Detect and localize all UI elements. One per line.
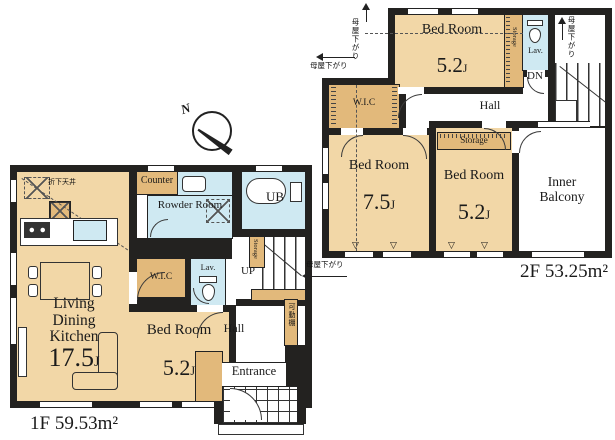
tv-board: [18, 327, 27, 377]
wall-segment: [298, 385, 306, 424]
window: [40, 401, 92, 408]
storage-2f-side-label: Storage: [511, 27, 518, 47]
wall-segment: [429, 128, 436, 251]
window: [182, 401, 214, 408]
window: [322, 148, 329, 174]
window-symbol: ▽: [481, 241, 488, 251]
door-opening: [129, 272, 137, 304]
wall-segment: [388, 8, 395, 85]
wall-segment: [232, 229, 312, 237]
powder-room-label: Rowder Room: [150, 200, 230, 212]
ldk-size-label: 17.5J: [38, 344, 110, 372]
window: [140, 401, 172, 408]
chair-icon: [28, 284, 38, 297]
floor-plan-canvas: N Storage UP 可動棚 折下天井: [0, 0, 615, 440]
bedroom-left-name-label: Bed Room: [344, 158, 414, 173]
hall-2f-label: Hall: [462, 99, 518, 112]
arrow-head: [302, 272, 309, 280]
size-unit: J: [463, 63, 468, 75]
door-opening: [512, 131, 519, 153]
window: [10, 180, 17, 202]
window: [10, 298, 17, 344]
window-symbol: ▽: [448, 241, 455, 251]
storage-2f-side: Storage: [505, 15, 523, 87]
chair-icon: [92, 266, 102, 279]
floor1-area-label: 1F 59.53m²: [30, 414, 118, 435]
arrow-up-icon: [362, 3, 370, 22]
ldk-name-label: Living Dining Kitchen: [38, 296, 110, 346]
bedroom-left-size-label: 7.5J: [344, 190, 414, 214]
wall-segment: [605, 8, 612, 258]
arrow-line: [562, 24, 563, 40]
size-unit: J: [94, 354, 100, 370]
door-opening: [482, 121, 506, 128]
window: [322, 183, 329, 209]
window: [408, 8, 438, 15]
window-symbol: ▽: [390, 241, 397, 251]
window: [10, 253, 17, 285]
door-opening: [341, 128, 363, 135]
wall-segment: [548, 8, 555, 126]
roof-slope-label: 母屋下がり: [566, 16, 577, 59]
door-opening: [403, 128, 427, 135]
size-unit: J: [390, 198, 395, 212]
door-arc: [519, 131, 541, 153]
movable-shelf-label: 可動棚: [287, 303, 297, 327]
floor2-area-label: 2F 53.25m²: [520, 262, 608, 283]
window: [256, 165, 282, 172]
counter-label: Counter: [137, 176, 177, 187]
storage-2f-mid-label: Storage: [440, 136, 508, 146]
toilet-tank-icon: [199, 276, 217, 283]
hall-1f-label: Hall: [204, 322, 264, 335]
compass-circle-icon: [192, 111, 232, 151]
washbasin-icon: [182, 176, 206, 192]
wic-2f-label: W.I.C: [331, 98, 397, 108]
window: [477, 251, 503, 258]
size-number: 17.5: [48, 343, 94, 372]
wall-segment: [322, 78, 395, 85]
window: [345, 251, 373, 258]
bedroom-right-size-label: 5.2J: [439, 200, 509, 224]
sofa-icon: [72, 372, 118, 390]
lav-1f-label: Lav.: [191, 263, 225, 272]
porch-step: [218, 424, 304, 435]
bath-label: UB: [262, 190, 288, 204]
stairs-up-label: UP: [236, 266, 260, 278]
window: [532, 251, 584, 258]
bedroom-top-name-label: Bed Room: [417, 22, 487, 37]
size-number: 5.2: [458, 199, 486, 224]
storage-1f-label: Storage: [252, 239, 259, 259]
lav-2f-label: Lav.: [523, 46, 548, 55]
wall-segment: [232, 172, 242, 229]
wall-segment: [305, 165, 312, 408]
dropped-ceiling-label: 折下天井: [48, 177, 76, 187]
size-number: 7.5: [363, 189, 391, 214]
window: [148, 165, 174, 172]
stairs-down-label: DN: [522, 71, 548, 83]
size-unit: J: [190, 364, 195, 378]
arrow-up-icon: [558, 17, 566, 40]
arrow-head: [558, 17, 566, 24]
bedroom-1f-size-label: 5.2J: [146, 356, 212, 380]
entrance-label: Entrance: [222, 365, 286, 379]
size-number: 5.2: [437, 53, 463, 77]
shelf-hatch: [506, 17, 510, 85]
roof-slope-label: 母屋下がり: [310, 60, 348, 71]
stove-icon: [24, 222, 50, 238]
bedroom-right-name-label: Bed Room: [439, 168, 509, 183]
window: [452, 8, 478, 15]
arrow-line: [366, 10, 367, 22]
chair-icon: [28, 266, 38, 279]
movable-shelf-side: 可動棚: [285, 300, 297, 345]
wic-1f-label: W.I.C: [137, 272, 185, 282]
roof-slope-label: 母屋下がり: [306, 259, 344, 270]
storage-1f: Storage: [250, 237, 264, 267]
door-opening: [197, 305, 223, 312]
bedroom-top-size-label: 5.2J: [417, 54, 487, 77]
size-number: 5.2: [163, 355, 191, 380]
arrow-line: [309, 276, 347, 277]
arrow-head: [362, 3, 370, 10]
bath-fixture-icon: [290, 182, 302, 202]
inner-balcony-label: Inner Balcony: [525, 175, 599, 204]
arrow-left-icon: [302, 272, 347, 280]
window: [444, 251, 470, 258]
window: [538, 121, 590, 128]
size-unit: J: [485, 208, 490, 222]
window: [383, 251, 411, 258]
kitchen-sink-icon: [74, 221, 106, 240]
door-opening: [398, 87, 424, 94]
wall-segment: [129, 238, 232, 259]
toilet-tank-icon: [527, 20, 543, 26]
bedroom-1f-name-label: Bed Room: [146, 322, 212, 338]
movable-shelf-top: [252, 290, 305, 300]
arrow-line: [323, 57, 355, 58]
compass-north-label: N: [179, 101, 192, 117]
